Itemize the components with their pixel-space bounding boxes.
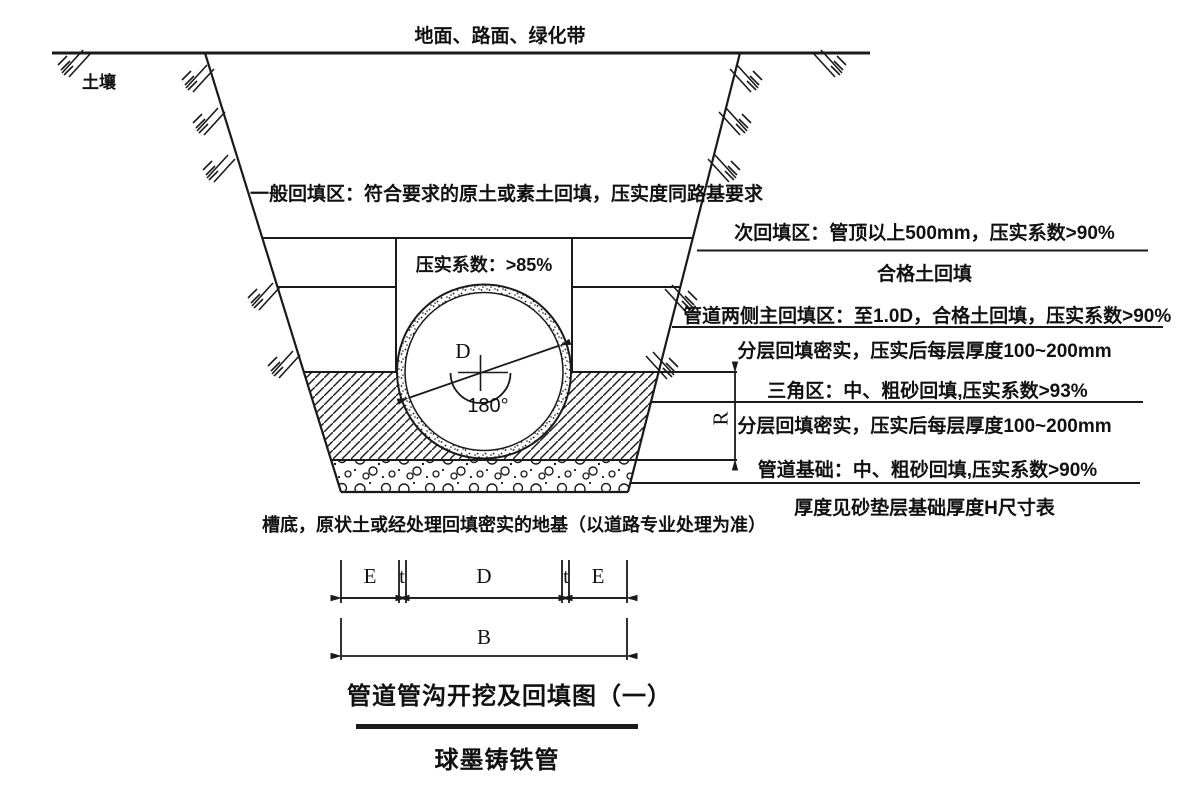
soil-mark-icon <box>248 283 280 310</box>
annotation-pipe-foundation: 管道基础：中、粗砂回填,压实系数>90% <box>700 455 1155 482</box>
pipe-diameter-label: D <box>448 339 478 364</box>
trench-bottom-note: 槽底，原状土或经处理回填密实的地基（以道路专业处理为准） <box>262 511 738 537</box>
general-backfill-note: 一般回填区：符合要求的原土或素土回填，压实度同路基要求 <box>250 179 720 206</box>
ground-surface-label: 地面、路面、绿化带 <box>350 21 650 48</box>
annotation-layered-compaction-2: 分层回填密实，压实后每层厚度100~200mm <box>697 411 1152 438</box>
foundation-bedding-zone <box>330 460 636 492</box>
soil-mark-icon <box>203 155 235 182</box>
soil-mark-icon <box>268 351 300 378</box>
t-right-dimension-label: t <box>554 564 578 589</box>
compaction-box-label: 压实系数：>85% <box>398 251 570 277</box>
b-dimension-label: B <box>469 625 499 650</box>
drawing-canvas: 地面、路面、绿化带 土壤 一般回填区：符合要求的原土或素土回填，压实度同路基要求… <box>0 0 1200 787</box>
e-left-dimension-label: E <box>355 564 385 589</box>
soil-mark-icon <box>193 108 225 135</box>
bedding-angle-label: 180° <box>455 395 521 418</box>
d-dimension-label: D <box>469 564 499 589</box>
t-left-dimension-label: t <box>390 564 414 589</box>
left-slope-line <box>205 53 341 492</box>
r-dimension-label: R <box>709 404 734 434</box>
e-right-dimension-label: E <box>583 564 613 589</box>
annotation-qualified-soil: 合格土回填 <box>697 259 1152 286</box>
soil-label: 土壤 <box>82 68 116 93</box>
drawing-title: 管道管沟开挖及回填图（一） <box>347 676 647 711</box>
annotation-secondary-backfill: 次回填区：管顶以上500mm，压实系数>90% <box>697 218 1152 245</box>
annotation-layered-compaction-1: 分层回填密实，压实后每层厚度100~200mm <box>697 336 1152 363</box>
annotation-triangle-zone: 三角区：中、粗砂回填,压实系数>93% <box>700 376 1155 403</box>
title-underline <box>356 724 638 729</box>
drawing-subtitle: 球墨铸铁管 <box>347 740 647 775</box>
annotation-main-backfill: 管道两侧主回填区：至1.0D，合格土回填，压实系数>90% <box>683 301 1166 328</box>
